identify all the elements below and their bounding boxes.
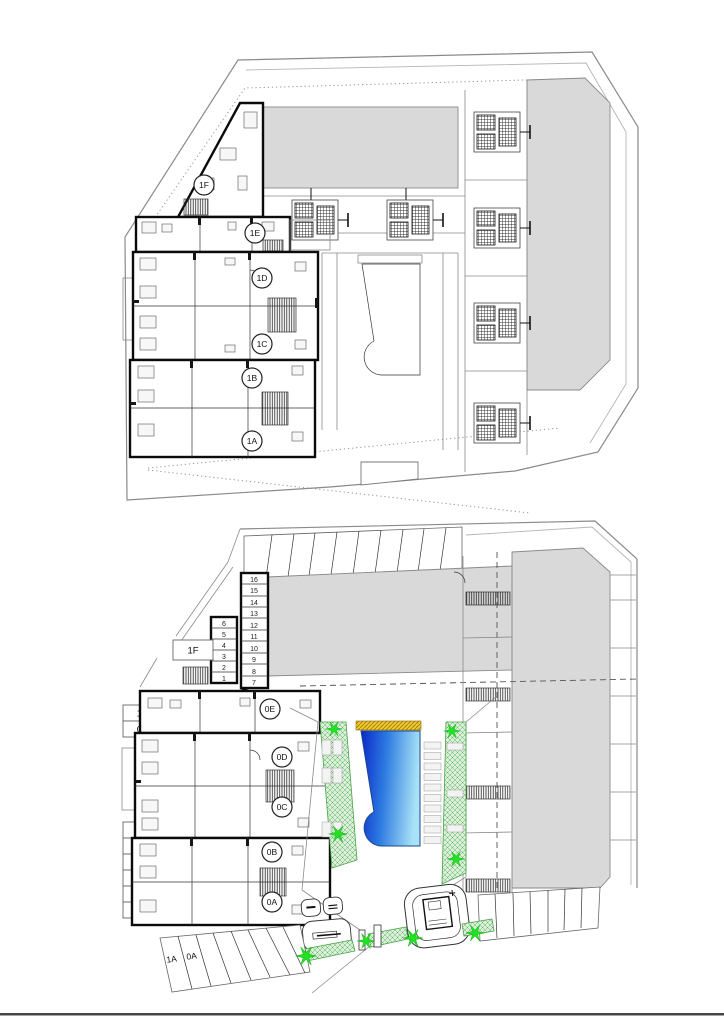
unit-label-0a: 0A (262, 892, 282, 912)
svg-text:6: 6 (222, 621, 226, 628)
stair-icon (184, 199, 208, 215)
unit-label-0d: 0D (272, 747, 292, 767)
svg-text:11: 11 (250, 634, 257, 641)
entry-steps-icon (263, 240, 283, 251)
unit-label-0b: 0B (262, 842, 282, 862)
unit-label-0c: 0C (272, 797, 292, 817)
unit-band-0e (140, 691, 320, 733)
unit-label-0e: 0E (260, 699, 280, 719)
stair-core-icon (474, 208, 530, 248)
courtyard-pool-outline (322, 253, 458, 450)
svg-text:1A: 1A (247, 436, 258, 446)
unit-1f (178, 103, 263, 217)
crosswalk-icon (466, 879, 510, 892)
svg-text:1F: 1F (187, 646, 198, 657)
stair-core-icon (474, 403, 530, 443)
svg-text:13: 13 (250, 611, 258, 618)
stair-icon (183, 667, 208, 684)
top-walkway-upper (263, 188, 465, 240)
page-border-bottom (0, 1013, 724, 1016)
neighbour-building-right-lower (512, 548, 610, 888)
entrance-lobby-upper (361, 462, 418, 485)
garage-roof-top (263, 107, 458, 188)
svg-text:1E: 1E (250, 228, 261, 238)
svg-text:8: 8 (252, 669, 256, 676)
svg-text:10: 10 (250, 646, 258, 653)
unit-label-1c: 1C (252, 334, 272, 354)
apartment-block-ground-floor: 0E 0D 0C 0B 0A (132, 691, 330, 925)
svg-text:7: 7 (252, 680, 256, 687)
parking-row-bottom-left: 1A 0A (160, 925, 310, 992)
floor-tag-1f: 1F (173, 640, 213, 660)
crosswalk-icon (466, 592, 510, 605)
upper-floor-plan: 1F 1E 1D 1C 1B 1A (123, 52, 638, 513)
svg-text:0C: 0C (277, 802, 288, 812)
entry-stair-icon (262, 392, 288, 425)
svg-text:0A: 0A (186, 950, 198, 961)
unit-band-0b-0a (132, 838, 330, 925)
svg-text:1F: 1F (199, 180, 209, 190)
crosswalk-icon (466, 786, 510, 799)
unit-label-1d: 1D (252, 268, 272, 288)
svg-text:2: 2 (222, 665, 226, 672)
svg-text:16: 16 (250, 577, 258, 584)
svg-text:0A: 0A (267, 897, 278, 907)
unit-band-1b-1a (130, 360, 315, 457)
crosswalk-icon (466, 688, 510, 701)
lower-floor-plan: 16 15 14 13 12 11 10 9 8 7 6 5 4 3 2 1 (122, 521, 637, 993)
garage-block-top (267, 566, 512, 676)
svg-text:1D: 1D (257, 273, 268, 283)
stair-core-icon (387, 200, 443, 240)
svg-text:15: 15 (250, 588, 258, 595)
svg-text:9: 9 (252, 657, 256, 664)
unit-label-1b: 1B (242, 368, 262, 388)
svg-text:5: 5 (222, 632, 226, 639)
unit-label-1a: 1A (242, 431, 262, 451)
unit-band-0d-0c (135, 733, 330, 838)
plan-sheet: 1F 1E 1D 1C 1B 1A (0, 0, 724, 1024)
svg-text:1: 1 (222, 676, 226, 683)
stair-core-icon (474, 303, 530, 343)
svg-text:12: 12 (250, 623, 258, 630)
svg-text:14: 14 (250, 600, 258, 607)
entrance-pillar (374, 925, 381, 947)
svg-text:1A: 1A (166, 953, 178, 964)
parking-row-bottom-right (478, 887, 600, 941)
right-corridor-upper (465, 80, 530, 472)
svg-text:1B: 1B (247, 373, 258, 383)
unit-band-1d-1c (133, 252, 318, 360)
svg-text:3: 3 (222, 654, 226, 661)
stair-core-icon (474, 112, 530, 152)
svg-text:0B: 0B (267, 847, 278, 857)
swimming-pool (361, 731, 420, 846)
neighbour-building-right (527, 78, 610, 390)
svg-text:4: 4 (222, 643, 226, 650)
site-plan-drawing: 1F 1E 1D 1C 1B 1A (0, 0, 724, 1024)
unit-label-1f: 1F (194, 175, 214, 195)
unit-label-1e: 1E (245, 223, 265, 243)
svg-text:0E: 0E (265, 704, 276, 714)
entry-stair-icon (268, 298, 296, 332)
svg-text:1C: 1C (257, 339, 268, 349)
pool-deck-strip (356, 721, 421, 730)
svg-text:0D: 0D (277, 752, 288, 762)
